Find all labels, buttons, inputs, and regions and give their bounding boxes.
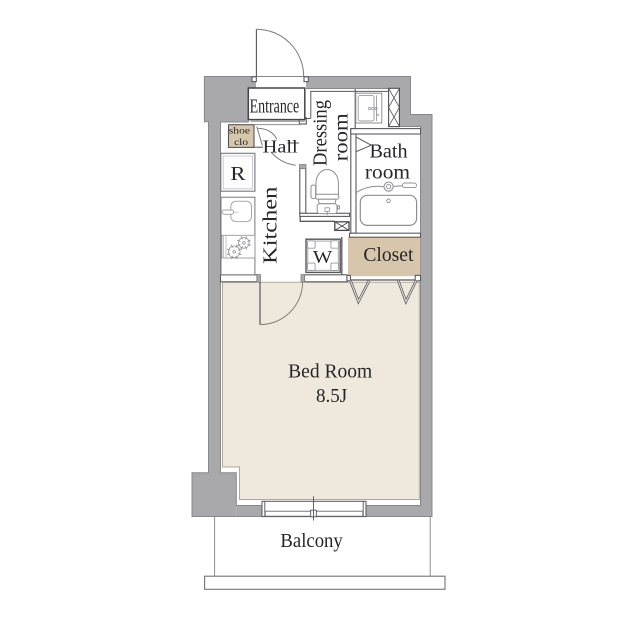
- svg-text:clo: clo: [234, 137, 248, 148]
- svg-text:Balcony: Balcony: [280, 530, 343, 552]
- svg-text:Hall: Hall: [263, 136, 298, 156]
- svg-text:room: room: [365, 161, 410, 183]
- svg-text:Kitchen: Kitchen: [259, 187, 281, 264]
- svg-text:R: R: [230, 163, 246, 185]
- svg-text:8.5J: 8.5J: [316, 385, 348, 407]
- svg-text:W: W: [313, 247, 332, 267]
- svg-text:Dressing: Dressing: [310, 100, 332, 166]
- svg-text:room: room: [330, 113, 352, 162]
- svg-text:Closet: Closet: [363, 244, 413, 266]
- svg-text:Entrance: Entrance: [250, 96, 300, 118]
- svg-text:Bath: Bath: [369, 140, 407, 162]
- svg-text:Bed Room: Bed Room: [288, 361, 372, 383]
- svg-text:shoe: shoe: [229, 126, 250, 137]
